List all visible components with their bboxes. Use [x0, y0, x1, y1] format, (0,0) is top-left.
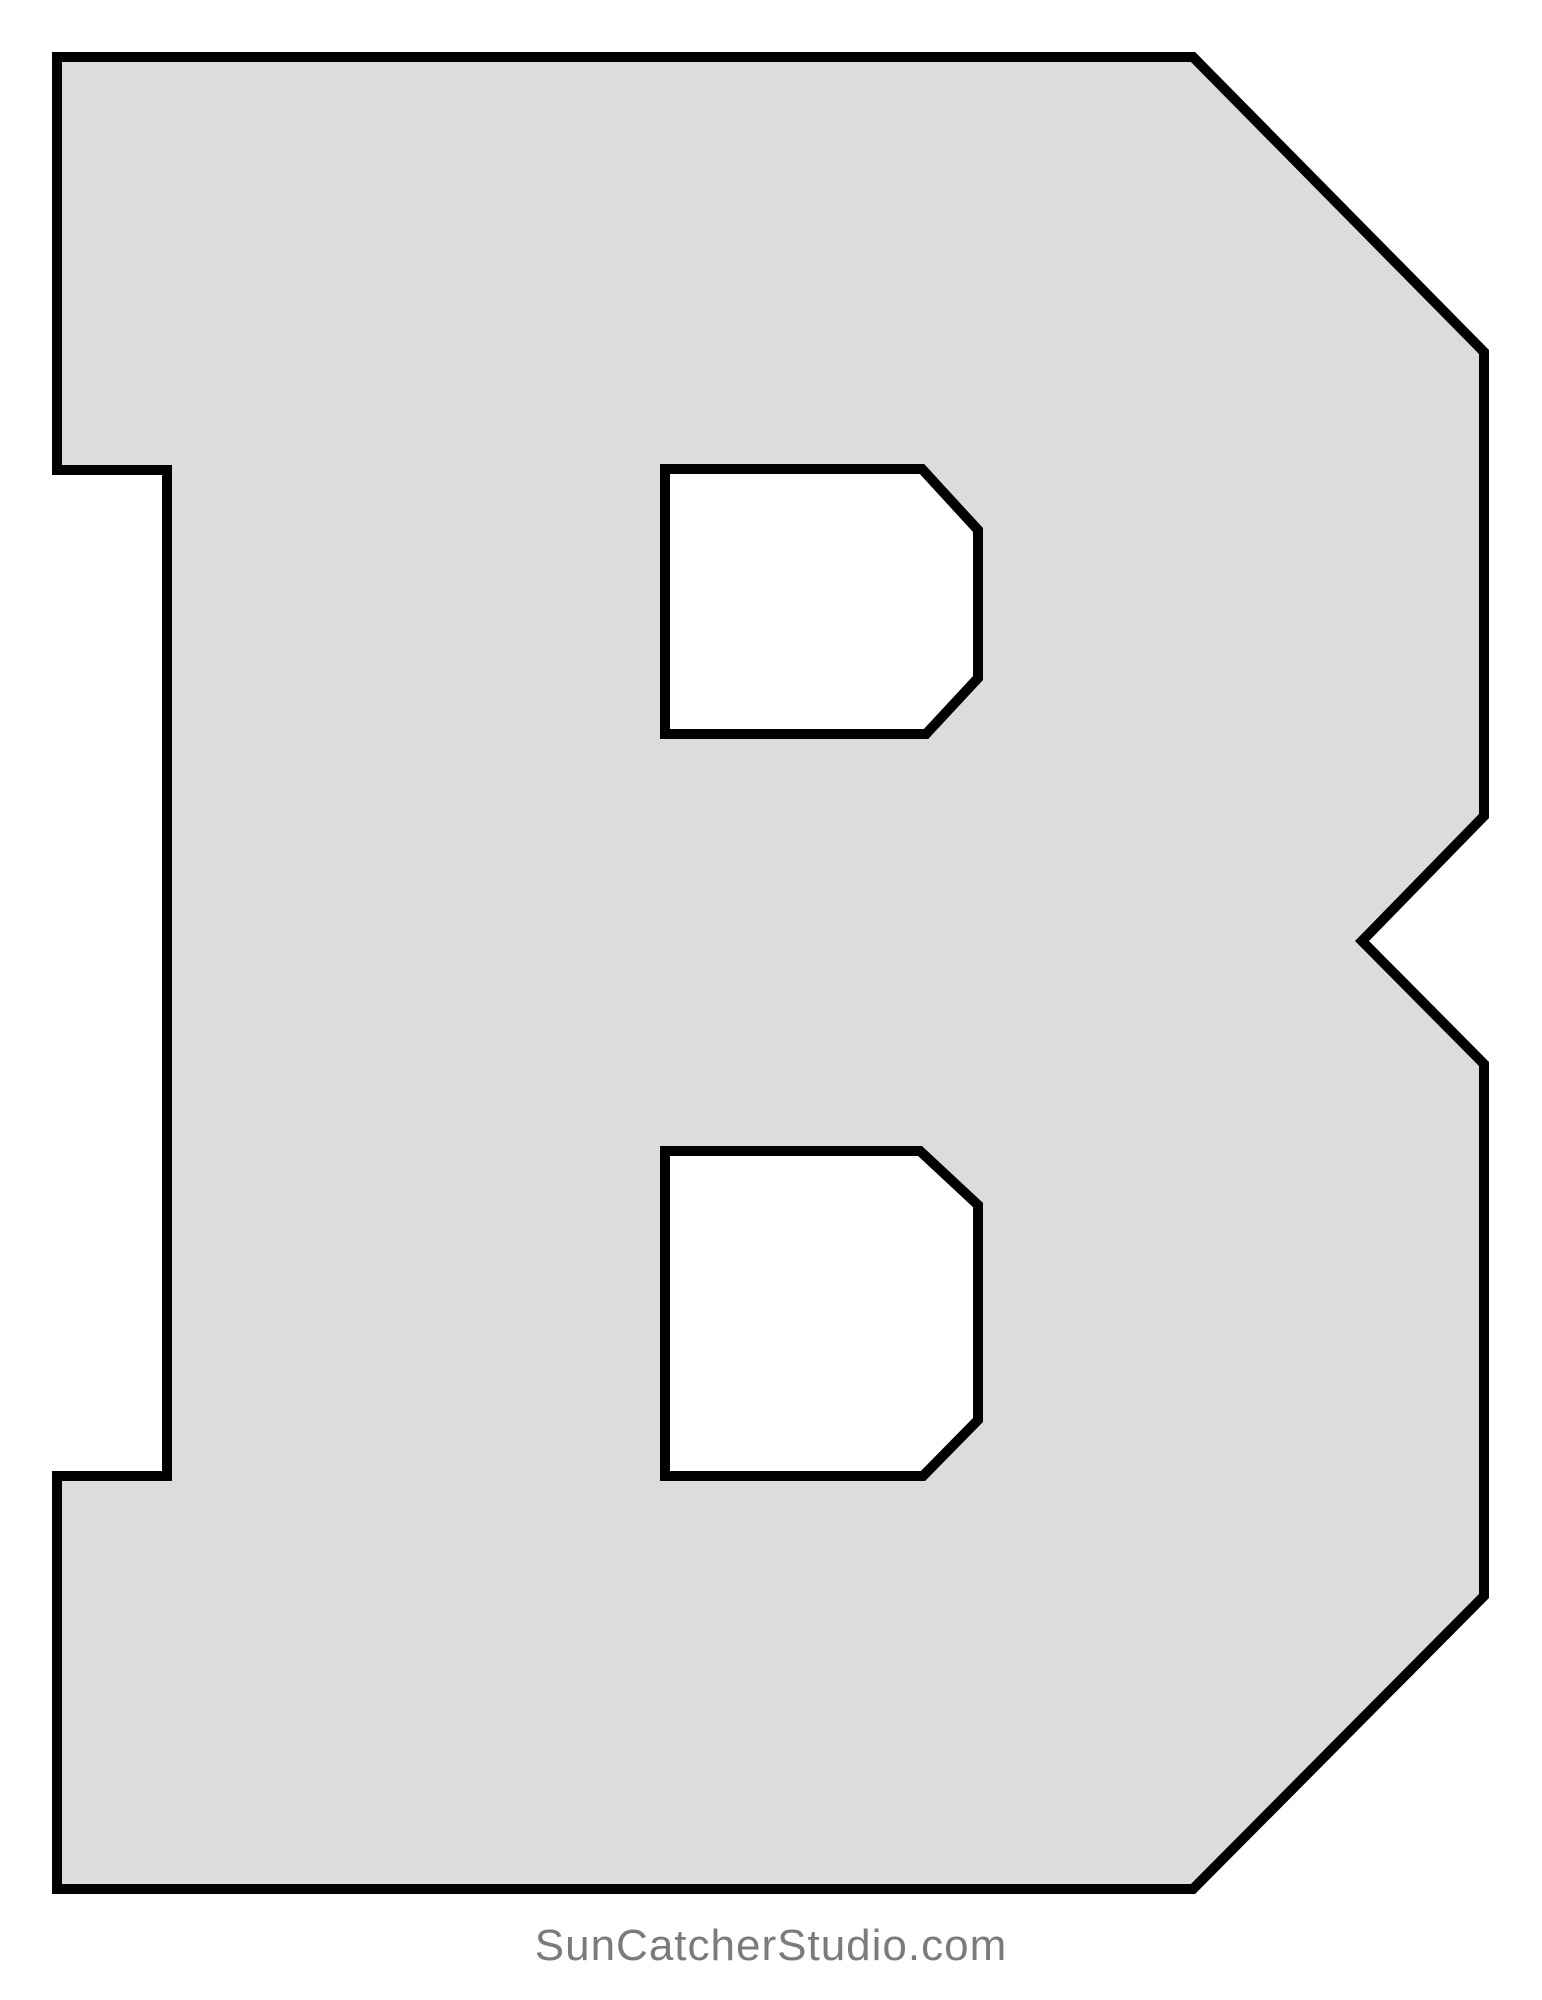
website-credit: SunCatcherStudio.com	[0, 1922, 1542, 1970]
pattern-page: SunCatcherStudio.com	[0, 0, 1542, 2000]
letter-b-shape	[57, 57, 1484, 1889]
letter-pattern-canvas	[0, 0, 1542, 2000]
